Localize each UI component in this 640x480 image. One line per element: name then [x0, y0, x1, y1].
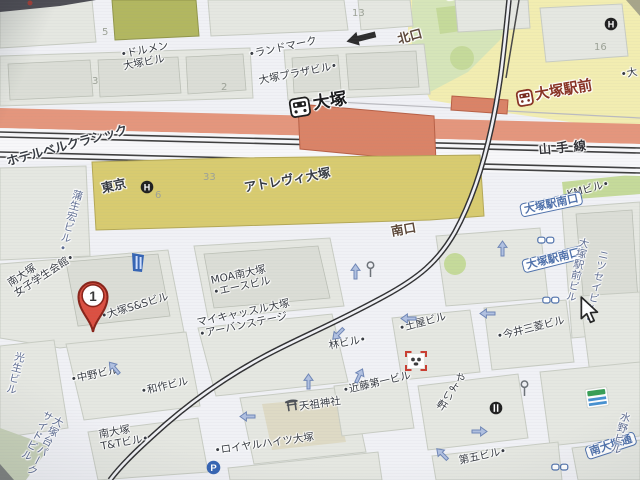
label-tenso-shrine: 天祖神社 [284, 392, 342, 415]
one-way-arrow-11 [467, 426, 488, 437]
label-mycastle-otsuka-urban-stage-text: マイキャッスル大塚 •アーバンステージ [196, 297, 291, 340]
label-wasaku-building-text: •和作ビル [140, 375, 190, 398]
label-daigo-building-partial: 第五ビル• [458, 446, 508, 468]
label-hotel-bellclassic-tokyo-text: 東京 [100, 175, 128, 195]
svg-text:H: H [608, 19, 615, 29]
label-yayoiken: やよい軒 [433, 369, 467, 412]
signal-icon-2 [520, 380, 529, 401]
block-num-2-text: 2 [221, 82, 227, 93]
bus-stop-otsuka-eki-minamiguchi-1: 大塚駅南口 [519, 191, 584, 218]
label-yayoiken-text: やよい軒 [434, 369, 468, 412]
label-hotel-bellclassic-tokyo: 東京 [100, 176, 128, 195]
label-yamanote-line: 山手線 [538, 138, 592, 157]
label-moa-minami-otsuka-ace-building: MOA南大塚 •エースビル [210, 264, 272, 299]
label-minami-otsuka-tt-building: 南大塚 T&Tビル• [98, 422, 150, 454]
label-royal-heights-otsuka-text: •ロイヤルハイツ大塚 [214, 431, 315, 457]
block-num-3-text: 3 [92, 76, 98, 87]
block-num-3: 3 [92, 76, 98, 87]
label-royal-heights-otsuka: •ロイヤルハイツ大塚 [214, 432, 315, 458]
label-minami-otsuka-tt-building-text: 南大塚 T&Tビル• [98, 424, 150, 453]
label-moa-minami-otsuka-ace-building-text: MOA南大塚 •エースビル [210, 263, 272, 298]
label-dolmen-otsuka-building: •ドルメン 大塚ビル [120, 41, 172, 73]
svg-text:P: P [210, 463, 217, 474]
label-yamanote-line-text: 山手線 [538, 137, 592, 157]
label-hotel-bellclassic: ホテルベルクラシック [5, 123, 129, 169]
label-hotel-bellclassic-text: ホテルベルクラシック [5, 122, 129, 169]
station-label-otsuka-text: 大塚 [312, 90, 349, 114]
tram-stop-label-otsuka-ekimae-text: 大塚駅前 [534, 78, 594, 104]
svg-text:H: H [144, 182, 151, 192]
label-south-exit-text: 南口 [390, 220, 417, 239]
label-minami-otsuka-joshi-gakusei-kaikan: 南大塚 女子学生会館• [6, 242, 77, 299]
blue-poi-icon [128, 251, 148, 278]
label-atrevie-otsuka-text: アトレヴィ大塚 [243, 165, 332, 195]
signal-icon-1 [366, 261, 375, 282]
label-otsuka-plaza-building: 大塚プラザビル• [258, 61, 338, 88]
label-otsukadai-parkside-building: 大塚台パーク サイドビル [13, 408, 65, 477]
label-landmark: •ランドマーク [248, 36, 318, 62]
block-num-33: 33 [203, 172, 216, 183]
label-otsuka-plaza-building-text: 大塚プラザビル• [258, 60, 339, 87]
tram-icon [515, 88, 535, 108]
label-mycastle-otsuka-urban-stage: マイキャッスル大塚 •アーバンステージ [196, 298, 293, 341]
label-partial-dai: •大 [620, 67, 638, 81]
map-canvas[interactable]: メゾンビル1353216336•ドルメン 大塚ビル•ランドマーク大塚プラザビル•… [0, 0, 640, 480]
label-layer: メゾンビル1353216336•ドルメン 大塚ビル•ランドマーク大塚プラザビル•… [0, 0, 640, 480]
restaurant-icon [489, 400, 503, 419]
label-otsukadai-parkside-building-text: 大塚台パーク サイドビル [19, 408, 66, 477]
station-label-otsuka: 大塚 [288, 90, 348, 119]
block-num-33-text: 33 [203, 172, 216, 183]
label-minami-otsuka-joshi-gakusei-kaikan-text: 南大塚 女子学生会館• [5, 251, 76, 299]
label-south-exit: 南口 [390, 221, 417, 239]
bus-icon-pair-3 [551, 457, 569, 476]
striped-flag-bath-icon [585, 387, 609, 412]
label-tenso-shrine-text: 天祖神社 [298, 395, 341, 413]
block-num-6-text: 6 [155, 190, 161, 201]
label-biru-partial-text: ビル [444, 0, 466, 3]
label-atrevie-otsuka: アトレヴィ大塚 [243, 166, 332, 195]
hotel-icon-top-right: H [604, 16, 618, 35]
bus-stop-otsuka-eki-minamiguchi-1-text: 大塚駅南口 [523, 192, 580, 216]
label-north-exit-text: 北口 [396, 26, 424, 47]
label-biru-partial: ビル [444, 0, 466, 4]
red-frame-poi-icon [405, 351, 427, 375]
one-way-arrow-5 [350, 263, 361, 284]
parking-icon: P [206, 460, 221, 479]
hotel-icon-bellclassic: H [140, 179, 154, 198]
tram-stop-label-otsuka-ekimae: 大塚駅前 [515, 78, 594, 108]
block-num-5: 5 [102, 27, 108, 38]
label-kosei-building: 光生ビル [3, 350, 25, 396]
one-way-arrow-black [344, 30, 378, 50]
mouse-cursor [578, 295, 604, 329]
one-way-arrow-6 [239, 411, 260, 422]
label-north-exit: 北口 [396, 27, 424, 47]
label-imai-mitsubishi-building: •今井三菱ビル [496, 315, 566, 343]
block-num-5-text: 5 [102, 27, 108, 38]
label-dolmen-otsuka-building-text: •ドルメン 大塚ビル [120, 40, 170, 73]
label-partial-dai-text: •大 [620, 66, 639, 81]
bus-icon-pair-1 [537, 230, 555, 249]
block-num-13-text: 13 [352, 8, 365, 19]
one-way-arrow-7 [303, 373, 314, 394]
map-pin-1[interactable]: 1 [74, 276, 112, 338]
train-icon [288, 96, 312, 119]
svg-text:1: 1 [89, 289, 97, 304]
label-kosei-building-text: 光生ビル [4, 350, 26, 396]
one-way-arrow-1 [497, 240, 508, 261]
block-num-2: 2 [221, 82, 227, 93]
block-num-13: 13 [352, 8, 365, 19]
block-num-6: 6 [155, 190, 161, 201]
one-way-arrow-2 [400, 313, 421, 324]
label-daigo-building-partial-text: 第五ビル• [458, 445, 508, 467]
bus-icon-pair-2 [542, 290, 560, 309]
one-way-arrow-3 [479, 308, 500, 319]
one-way-arrow-10 [432, 444, 455, 467]
block-num-16: 16 [594, 42, 607, 53]
label-otsuka-ekimae-building: 大塚駅前ビル [563, 236, 589, 303]
label-wasaku-building: •和作ビル [140, 376, 190, 398]
label-landmark-text: •ランドマーク [248, 35, 318, 61]
label-imai-mitsubishi-building-text: •今井三菱ビル [496, 314, 566, 342]
block-num-16-text: 16 [594, 42, 607, 53]
